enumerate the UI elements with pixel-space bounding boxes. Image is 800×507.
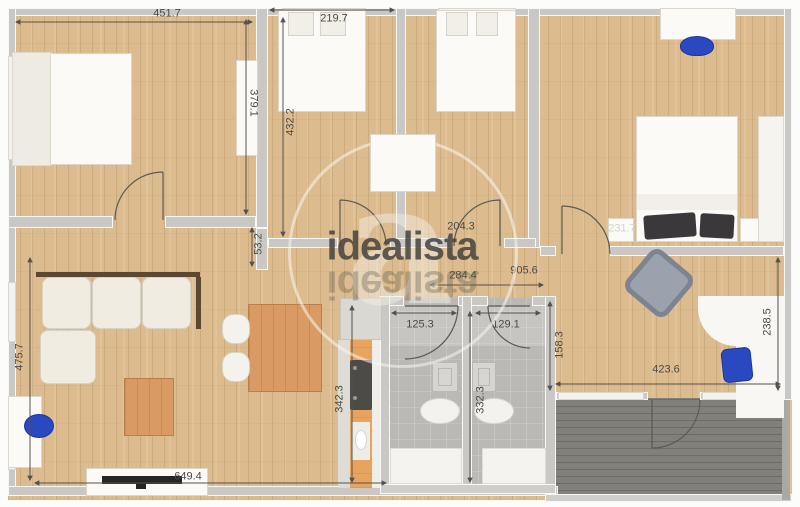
dining-chair [222, 314, 250, 344]
kitchen-counter-back [338, 340, 350, 488]
sofa-cushion [142, 277, 191, 329]
watermark-brand-reflection: idealista [326, 262, 477, 307]
window [8, 282, 16, 342]
dimension-label: 423.6 [652, 365, 680, 376]
dimension-label: 129.1 [492, 320, 520, 331]
pillow [446, 12, 468, 36]
bed-fold [637, 194, 737, 210]
pillow [288, 12, 314, 36]
wardrobe [758, 116, 784, 242]
shower-inner [478, 368, 490, 386]
stove-knob [353, 396, 357, 400]
wall-segment [165, 216, 256, 228]
dining-chair [222, 352, 250, 382]
wall-segment [545, 296, 556, 494]
shower-inner [438, 368, 452, 386]
tv [102, 476, 182, 484]
blue-office-chair [720, 347, 753, 384]
sofa-cushion [92, 277, 141, 329]
dimension-label: 332.3 [476, 386, 487, 414]
sofa-chaise [40, 330, 96, 384]
dimension-label: 649.4 [174, 472, 202, 483]
shower-unit [432, 362, 458, 392]
double-bed [50, 53, 132, 165]
dimension-label: 53.2 [254, 233, 265, 254]
dimension-label: 342.3 [335, 385, 346, 413]
wall-segment [545, 494, 792, 502]
blue-desk-chair [680, 36, 714, 56]
bathtub [482, 448, 546, 484]
wall-segment [784, 8, 792, 400]
tv-stand-foot [136, 484, 146, 489]
wall-segment [380, 484, 556, 494]
dimension-label: 238.5 [763, 308, 774, 336]
sofa-frame [196, 277, 201, 329]
dimension-label: 432.2 [286, 108, 297, 136]
dark-pillow [699, 213, 734, 239]
dimension-label: 475.7 [15, 343, 26, 371]
wall-segment [8, 216, 113, 228]
double-bed-pillows [12, 52, 52, 166]
sink-basin [355, 430, 367, 450]
stove-knob [353, 366, 357, 370]
dimension-label: 451.7 [153, 9, 181, 20]
wall-segment [540, 246, 556, 256]
wall-segment [528, 8, 540, 248]
dark-pillow [643, 212, 697, 240]
dimension-label: 219.7 [320, 14, 348, 25]
toilet [420, 398, 460, 424]
floor-plan: 451.7 219.7 379.1 432.2 53.2 204.3 284.4… [0, 0, 800, 507]
dimension-label: 231.7 [608, 224, 636, 235]
blue-desk-chair [24, 414, 54, 438]
coffee-table [124, 378, 174, 436]
dresser [370, 134, 436, 192]
dimension-label: 379.1 [248, 89, 259, 117]
bathtub [390, 448, 462, 484]
wall-segment [610, 246, 784, 256]
dimension-label: 158.3 [555, 331, 566, 359]
sofa-cushion [42, 277, 91, 329]
terrace-sliding-door [558, 392, 644, 400]
pillow [476, 12, 498, 36]
